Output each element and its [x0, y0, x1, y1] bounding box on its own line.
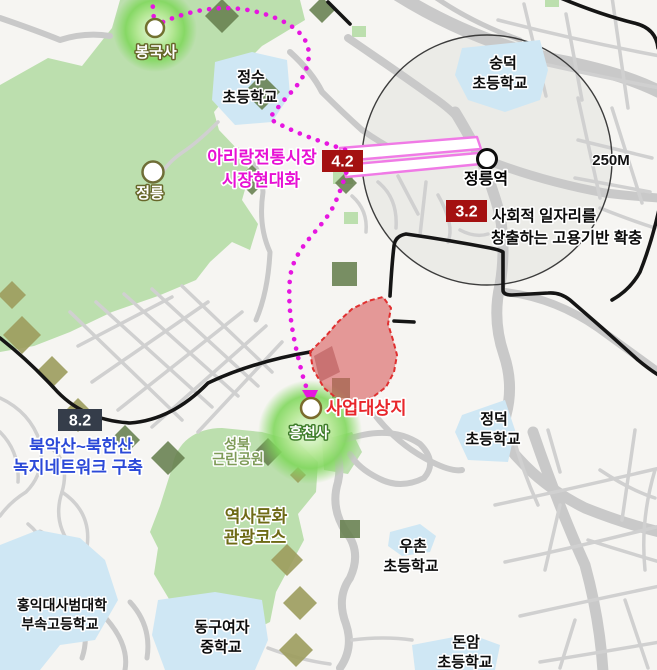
label-donggu-2: 중학교 [200, 639, 242, 656]
marker-bongguksa-icon [146, 19, 164, 37]
annotation-site-label: 사업대상지 [326, 398, 407, 418]
badge-greenway-number: 8.2 [69, 413, 91, 430]
label-uchon-2: 초등학교 [383, 558, 438, 575]
annotation-heritage-1: 역사문화 [225, 507, 288, 526]
annotation-market-2: 시장현대화 [222, 171, 301, 190]
marker-heungcheonsa-icon [301, 398, 321, 418]
green-patch [352, 26, 366, 37]
badge-jobs-number: 3.2 [455, 204, 477, 221]
badge-market-number: 4.2 [331, 154, 353, 171]
label-donggu-1: 동구여자 [194, 619, 249, 636]
label-sungdeok-1: 숭덕 [489, 54, 517, 72]
label-donam-1: 돈암 [452, 633, 480, 651]
label-bongguksa: 봉국사 [135, 44, 177, 61]
label-jeongdeok-2: 초등학교 [465, 431, 520, 448]
label-hongik-2: 부속고등학교 [21, 616, 98, 632]
label-heungcheonsa: 흥천사 [289, 424, 330, 442]
green-patch [344, 212, 358, 224]
label-jeongdeok-1: 정덕 [480, 410, 508, 428]
label-jeongsu-2: 초등학교 [222, 89, 277, 106]
map-svg: 4.2 3.2 8.2 봉국사 정릉 흥천사 정수 초등학교 숭덕 초등학교 정… [0, 0, 657, 670]
annotation-jobs-1: 사회적 일자리를 [492, 206, 596, 225]
annotation-heritage-2: 관광코스 [224, 528, 287, 547]
label-seongbuk-park-1: 성북 [224, 436, 250, 452]
marker-station-icon [478, 150, 497, 169]
label-donam-2: 초등학교 [437, 654, 492, 670]
annotation-greenway-1: 북악산~북한산 [29, 437, 133, 456]
label-jeongneung: 정릉 [136, 184, 164, 202]
label-uchon-1: 우촌 [399, 538, 427, 555]
label-hongik-1: 홍익대사범대학 [17, 597, 107, 613]
label-sungdeok-2: 초등학교 [472, 75, 527, 92]
annotation-jobs-2: 창출하는 고용기반 확충 [491, 228, 642, 247]
label-station: 정릉역 [464, 170, 508, 188]
map-canvas: 4.2 3.2 8.2 봉국사 정릉 흥천사 정수 초등학교 숭덕 초등학교 정… [0, 0, 657, 670]
marker-jeongneung-icon [143, 162, 164, 183]
green-patch [545, 0, 559, 7]
annotation-market-1: 아리랑전통시장 [207, 148, 317, 167]
label-seongbuk-park-2: 근린공원 [212, 451, 264, 467]
label-jeongsu-1: 정수 [237, 68, 265, 86]
annotation-greenway-2: 녹지네트워크 구축 [13, 458, 143, 477]
label-scale: 250M [592, 152, 630, 169]
